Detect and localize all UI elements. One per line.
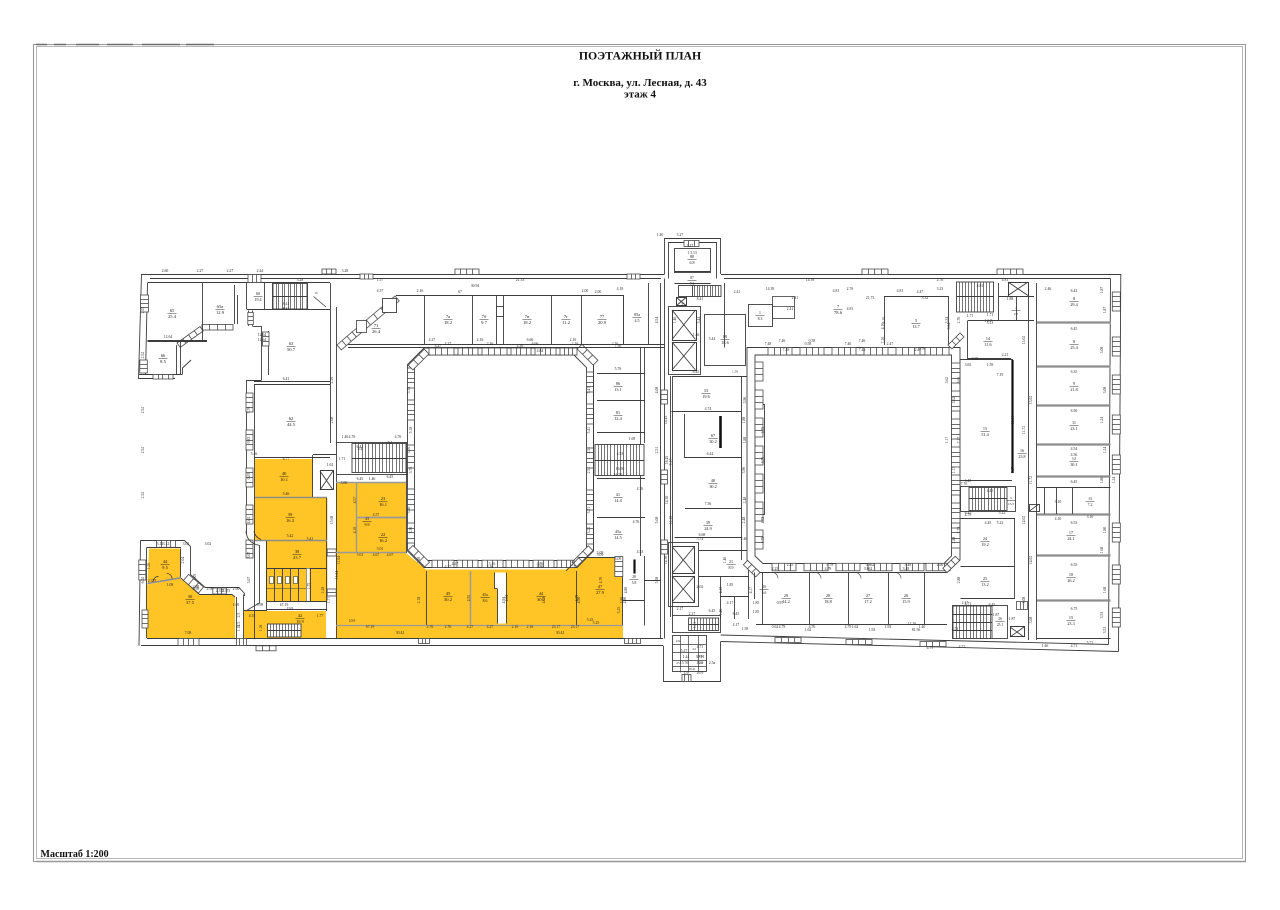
svg-text:3.07: 3.07 bbox=[247, 577, 251, 584]
svg-text:16.2: 16.2 bbox=[379, 538, 388, 543]
svg-text:1.05: 1.05 bbox=[193, 574, 197, 581]
svg-text:23.17: 23.17 bbox=[571, 625, 580, 629]
svg-text:6.45: 6.45 bbox=[989, 603, 996, 607]
svg-text:4.08: 4.08 bbox=[655, 387, 659, 394]
svg-text:8.5: 8.5 bbox=[160, 359, 166, 364]
svg-text:1 3.13: 1 3.13 bbox=[687, 251, 697, 255]
svg-text:11.10: 11.10 bbox=[669, 516, 673, 525]
svg-text:4.94: 4.94 bbox=[502, 597, 506, 604]
svg-text:1.71: 1.71 bbox=[339, 457, 346, 461]
svg-text:4.74: 4.74 bbox=[705, 407, 712, 411]
svg-text:2.41: 2.41 bbox=[734, 290, 741, 294]
svg-text:3.65: 3.65 bbox=[965, 363, 972, 367]
svg-text:1: 1 bbox=[759, 311, 761, 315]
svg-text:3.30: 3.30 bbox=[409, 527, 413, 534]
svg-text:5.42: 5.42 bbox=[287, 534, 294, 538]
svg-text:7.17: 7.17 bbox=[669, 459, 673, 466]
svg-text:4.47: 4.47 bbox=[917, 290, 924, 294]
svg-text:4.75: 4.75 bbox=[761, 457, 765, 464]
svg-text:8.4: 8.4 bbox=[358, 447, 363, 451]
svg-text:3.10: 3.10 bbox=[1087, 515, 1094, 519]
svg-text:11.2: 11.2 bbox=[562, 320, 571, 325]
svg-text:3.16: 3.16 bbox=[489, 562, 496, 566]
svg-text:1.71: 1.71 bbox=[987, 313, 994, 317]
svg-text:4.75: 4.75 bbox=[761, 427, 765, 434]
svg-text:4.78: 4.78 bbox=[761, 517, 765, 524]
svg-text:этаж 4: этаж 4 bbox=[624, 89, 657, 101]
svg-text:3.34: 3.34 bbox=[945, 317, 949, 324]
svg-text:8.41: 8.41 bbox=[283, 307, 290, 311]
svg-text:2.51: 2.51 bbox=[587, 467, 591, 474]
svg-text:г. Москва, ул. Лесная, д. 43: г. Москва, ул. Лесная, д. 43 bbox=[573, 77, 707, 89]
svg-text:25: 25 bbox=[983, 576, 987, 581]
svg-text:2.17: 2.17 bbox=[677, 607, 684, 611]
svg-text:3.30: 3.30 bbox=[407, 507, 411, 514]
svg-text:10: 10 bbox=[1069, 572, 1073, 577]
svg-text:5.25: 5.25 bbox=[593, 621, 600, 625]
svg-text:20: 20 bbox=[762, 585, 766, 589]
svg-text:39: 39 bbox=[288, 512, 293, 517]
svg-text:4.57: 4.57 bbox=[353, 497, 357, 504]
svg-text:21.8: 21.8 bbox=[1070, 387, 1077, 392]
svg-text:7б: 7б bbox=[482, 314, 487, 319]
svg-text:30.1: 30.1 bbox=[1070, 462, 1077, 467]
svg-text:1.24: 1.24 bbox=[1112, 477, 1116, 484]
svg-text:67.19: 67.19 bbox=[280, 603, 289, 607]
svg-text:30.42: 30.42 bbox=[556, 631, 565, 635]
svg-text:2.52: 2.52 bbox=[141, 407, 145, 414]
svg-text:4.27: 4.27 bbox=[429, 338, 436, 342]
svg-text:30.2: 30.2 bbox=[444, 597, 453, 602]
svg-text:1.87: 1.87 bbox=[1009, 617, 1016, 621]
svg-text:3.862: 3.862 bbox=[866, 563, 875, 567]
svg-text:23.17: 23.17 bbox=[552, 625, 561, 629]
svg-text:8.4: 8.4 bbox=[388, 441, 393, 445]
svg-text:6.55: 6.55 bbox=[1071, 563, 1078, 567]
svg-text:4.79: 4.79 bbox=[779, 625, 786, 629]
svg-text:1.93: 1.93 bbox=[885, 625, 892, 629]
svg-text:14.02: 14.02 bbox=[1029, 556, 1033, 565]
svg-text:86: 86 bbox=[616, 381, 620, 386]
svg-text:16.3: 16.3 bbox=[286, 518, 295, 523]
svg-text:12.4: 12.4 bbox=[614, 416, 622, 421]
svg-text:18.6: 18.6 bbox=[721, 340, 728, 345]
svg-text:6.45: 6.45 bbox=[1071, 480, 1078, 484]
svg-text:1.46: 1.46 bbox=[1042, 644, 1049, 648]
svg-text:67: 67 bbox=[711, 433, 715, 438]
svg-text:13.7: 13.7 bbox=[912, 324, 919, 329]
svg-text:4.27: 4.27 bbox=[445, 565, 452, 569]
svg-text:3.09: 3.09 bbox=[615, 557, 622, 561]
svg-text:2.04: 2.04 bbox=[181, 557, 185, 564]
svg-text:2.375: 2.375 bbox=[222, 589, 231, 593]
svg-text:7.17: 7.17 bbox=[957, 437, 961, 444]
svg-text:21.73: 21.73 bbox=[866, 296, 875, 300]
svg-text:2.16: 2.16 bbox=[417, 289, 424, 293]
svg-text:2.52: 2.52 bbox=[141, 492, 145, 499]
svg-text:23: 23 bbox=[381, 496, 386, 501]
svg-text:4.81: 4.81 bbox=[977, 284, 984, 288]
svg-text:51.4: 51.4 bbox=[981, 432, 989, 437]
svg-text:2.27: 2.27 bbox=[227, 269, 234, 273]
svg-text:8: 8 bbox=[1073, 296, 1075, 301]
svg-text:5.41: 5.41 bbox=[307, 537, 314, 541]
svg-text:1б: 1б bbox=[314, 291, 318, 295]
svg-text:40: 40 bbox=[282, 471, 287, 476]
svg-text:30.2: 30.2 bbox=[709, 484, 716, 489]
svg-text:8.41: 8.41 bbox=[697, 297, 704, 301]
svg-text:4.76: 4.76 bbox=[599, 577, 603, 584]
svg-text:14.5: 14.5 bbox=[614, 535, 621, 540]
svg-text:0.58: 0.58 bbox=[805, 342, 812, 346]
svg-text:2.16: 2.16 bbox=[512, 625, 519, 629]
svg-text:4.10: 4.10 bbox=[1055, 517, 1062, 521]
svg-text:8.6: 8.6 bbox=[483, 599, 488, 603]
svg-text:3.76: 3.76 bbox=[407, 447, 411, 454]
svg-text:5.41: 5.41 bbox=[587, 387, 591, 394]
svg-text:7.19: 7.19 bbox=[997, 373, 1004, 377]
svg-text:5.76: 5.76 bbox=[615, 367, 622, 371]
svg-text:1.46: 1.46 bbox=[719, 609, 723, 616]
svg-text:2.48: 2.48 bbox=[742, 517, 746, 524]
svg-text:2.46: 2.46 bbox=[1045, 287, 1052, 291]
svg-text:2.08: 2.08 bbox=[330, 417, 334, 424]
svg-text:7.08: 7.08 bbox=[185, 631, 192, 635]
svg-text:4.55: 4.55 bbox=[249, 614, 256, 618]
svg-text:29: 29 bbox=[784, 593, 788, 598]
svg-text:66: 66 bbox=[161, 353, 166, 358]
svg-text:16.50: 16.50 bbox=[616, 467, 625, 471]
svg-text:22: 22 bbox=[381, 532, 386, 537]
svg-text:1.46: 1.46 bbox=[369, 477, 376, 481]
svg-text:3.32: 3.32 bbox=[922, 296, 929, 300]
svg-text:2.78: 2.78 bbox=[957, 527, 961, 534]
svg-text:1.80: 1.80 bbox=[1103, 527, 1107, 534]
svg-text:6.35: 6.35 bbox=[1071, 370, 1078, 374]
svg-text:85а: 85а bbox=[634, 312, 640, 317]
svg-text:5.71: 5.71 bbox=[1087, 641, 1094, 645]
svg-text:26: 26 bbox=[998, 617, 1002, 621]
svg-text:5.76: 5.76 bbox=[247, 407, 251, 414]
svg-text:5.18: 5.18 bbox=[407, 387, 411, 394]
svg-text:Масштаб 1:200: Масштаб 1:200 bbox=[41, 849, 109, 860]
svg-text:2.46: 2.46 bbox=[741, 537, 748, 541]
svg-text:3.53: 3.53 bbox=[1100, 612, 1104, 619]
svg-text:1.57: 1.57 bbox=[377, 278, 384, 282]
svg-text:1.88: 1.88 bbox=[1007, 297, 1014, 301]
svg-text:2: 2 bbox=[681, 303, 683, 307]
svg-text:14.4: 14.4 bbox=[614, 498, 622, 503]
svg-text:24.9: 24.9 bbox=[704, 526, 711, 531]
svg-text:3.08: 3.08 bbox=[1022, 597, 1026, 604]
svg-text:71: 71 bbox=[374, 323, 379, 328]
svg-text:11.10: 11.10 bbox=[1011, 416, 1015, 425]
svg-text:3.21: 3.21 bbox=[587, 527, 591, 534]
svg-text:14.2: 14.2 bbox=[782, 599, 789, 604]
svg-text:1.40: 1.40 bbox=[657, 233, 664, 237]
svg-text:2.44: 2.44 bbox=[257, 269, 264, 273]
svg-text:44: 44 bbox=[163, 559, 168, 564]
svg-text:3.65: 3.65 bbox=[972, 357, 979, 361]
svg-text:8.9: 8.9 bbox=[729, 565, 734, 570]
svg-text:11.72: 11.72 bbox=[1029, 476, 1033, 485]
svg-text:2.98: 2.98 bbox=[193, 587, 200, 591]
svg-text:4.81: 4.81 bbox=[897, 289, 904, 293]
svg-text:4.57: 4.57 bbox=[377, 289, 384, 293]
svg-text:5.25: 5.25 bbox=[617, 607, 621, 614]
svg-text:4.79: 4.79 bbox=[542, 597, 546, 604]
svg-text:7г: 7г bbox=[564, 314, 568, 319]
svg-text:1.85: 1.85 bbox=[727, 583, 734, 587]
svg-text:2.88: 2.88 bbox=[952, 537, 956, 544]
svg-text:9.7: 9.7 bbox=[481, 320, 487, 325]
svg-text:15.68: 15.68 bbox=[330, 516, 334, 525]
svg-text:4.86: 4.86 bbox=[537, 562, 544, 566]
svg-text:2.16: 2.16 bbox=[572, 560, 576, 567]
svg-text:5.41: 5.41 bbox=[587, 427, 591, 434]
svg-text:26.2: 26.2 bbox=[1067, 578, 1074, 583]
svg-text:14.30: 14.30 bbox=[665, 496, 669, 505]
svg-text:13.1: 13.1 bbox=[614, 387, 621, 392]
svg-text:3.12: 3.12 bbox=[163, 542, 170, 546]
svg-text:3.62: 3.62 bbox=[952, 397, 956, 404]
svg-text:4.79: 4.79 bbox=[845, 625, 852, 629]
svg-text:37.5: 37.5 bbox=[186, 600, 195, 605]
svg-text:6.66: 6.66 bbox=[532, 342, 539, 346]
svg-text:2.96: 2.96 bbox=[207, 587, 214, 591]
svg-text:3.23: 3.23 bbox=[937, 287, 944, 291]
svg-text:6.45: 6.45 bbox=[387, 475, 394, 479]
svg-text:2.41: 2.41 bbox=[787, 307, 794, 311]
svg-text:3.34: 3.34 bbox=[947, 323, 951, 330]
svg-text:6.43: 6.43 bbox=[1071, 289, 1078, 293]
svg-text:81: 81 bbox=[616, 410, 620, 415]
svg-text:12.64: 12.64 bbox=[164, 335, 173, 339]
svg-text:3.02: 3.02 bbox=[183, 542, 190, 546]
svg-text:6.50: 6.50 bbox=[1071, 409, 1078, 413]
svg-text:4.10: 4.10 bbox=[719, 587, 723, 594]
svg-text:8: 8 bbox=[1073, 339, 1075, 344]
svg-text:3.44: 3.44 bbox=[697, 317, 701, 324]
svg-text:78.6: 78.6 bbox=[834, 310, 843, 315]
svg-text:5.22: 5.22 bbox=[999, 511, 1006, 515]
svg-text:7.2: 7.2 bbox=[1088, 503, 1093, 507]
svg-text:1.62: 1.62 bbox=[327, 463, 334, 467]
svg-text:12.64: 12.64 bbox=[258, 333, 267, 337]
svg-text:5.46: 5.46 bbox=[251, 452, 258, 456]
svg-text:28: 28 bbox=[632, 575, 636, 579]
svg-text:3.13: 3.13 bbox=[987, 321, 994, 325]
svg-text:16.1: 16.1 bbox=[379, 502, 388, 507]
svg-text:19.6: 19.6 bbox=[702, 394, 709, 399]
svg-text:4.10: 4.10 bbox=[353, 527, 357, 534]
svg-text:4: 4 bbox=[1015, 306, 1017, 310]
svg-text:1.59: 1.59 bbox=[987, 363, 994, 367]
svg-text:3.06: 3.06 bbox=[341, 481, 348, 485]
svg-text:1.46: 1.46 bbox=[673, 317, 677, 324]
svg-text:5.01: 5.01 bbox=[377, 547, 384, 551]
svg-text:2.17: 2.17 bbox=[962, 601, 969, 605]
svg-text:4.81: 4.81 bbox=[1002, 278, 1009, 282]
svg-text:5.08: 5.08 bbox=[655, 517, 659, 524]
svg-text:9.5: 9.5 bbox=[162, 565, 168, 570]
svg-text:5.27: 5.27 bbox=[681, 649, 688, 653]
svg-text:4.90: 4.90 bbox=[577, 597, 581, 604]
svg-text:2.5а: 2.5а bbox=[709, 661, 716, 665]
svg-text:2.52: 2.52 bbox=[141, 352, 145, 359]
svg-text:2.16: 2.16 bbox=[527, 625, 534, 629]
svg-text:2.48: 2.48 bbox=[743, 497, 747, 504]
svg-text:1.17: 1.17 bbox=[945, 437, 949, 444]
svg-text:30.94: 30.94 bbox=[471, 284, 480, 288]
svg-text:6.75: 6.75 bbox=[1071, 607, 1078, 611]
svg-text:6.45: 6.45 bbox=[709, 609, 716, 613]
svg-text:9: 9 bbox=[1073, 381, 1075, 386]
svg-text:3.08: 3.08 bbox=[1100, 347, 1104, 354]
svg-text:4.16: 4.16 bbox=[881, 323, 885, 330]
svg-text:87: 87 bbox=[690, 276, 694, 280]
svg-text:5.01: 5.01 bbox=[357, 553, 364, 557]
svg-text:3.12: 3.12 bbox=[157, 542, 164, 546]
svg-text:2.76: 2.76 bbox=[445, 625, 452, 629]
svg-text:65: 65 bbox=[170, 308, 175, 313]
svg-text:2.97: 2.97 bbox=[141, 307, 145, 314]
svg-text:2.47: 2.47 bbox=[887, 342, 894, 346]
svg-text:11.16: 11.16 bbox=[908, 622, 917, 626]
svg-text:2.76: 2.76 bbox=[847, 287, 854, 291]
svg-text:4.53: 4.53 bbox=[617, 452, 624, 456]
svg-text:6.41: 6.41 bbox=[283, 377, 290, 381]
svg-text:1.59: 1.59 bbox=[732, 370, 738, 374]
svg-text:1.18: 1.18 bbox=[259, 625, 263, 632]
svg-text:4.79: 4.79 bbox=[927, 646, 934, 650]
svg-text:3.27: 3.27 bbox=[677, 233, 684, 237]
svg-text:1.05: 1.05 bbox=[233, 603, 240, 607]
svg-text:28: 28 bbox=[826, 593, 830, 598]
svg-text:4.67: 4.67 bbox=[387, 553, 394, 557]
svg-text:1.76: 1.76 bbox=[919, 347, 926, 351]
svg-text:2.76: 2.76 bbox=[427, 625, 434, 629]
svg-text:4.84: 4.84 bbox=[537, 349, 544, 353]
svg-text:1.44: 1.44 bbox=[683, 655, 690, 659]
svg-text:1.68: 1.68 bbox=[1100, 547, 1104, 554]
svg-text:27.9: 27.9 bbox=[596, 590, 605, 595]
svg-text:16.50: 16.50 bbox=[614, 473, 623, 477]
svg-text:1.26: 1.26 bbox=[147, 563, 151, 570]
svg-text:4.80: 4.80 bbox=[624, 587, 628, 594]
svg-text:42: 42 bbox=[298, 613, 302, 618]
svg-text:7.46: 7.46 bbox=[845, 342, 852, 346]
svg-text:5: 5 bbox=[915, 318, 917, 323]
svg-text:25.4: 25.4 bbox=[1070, 345, 1078, 350]
svg-text:6.6: 6.6 bbox=[762, 591, 767, 595]
svg-text:6.45: 6.45 bbox=[733, 612, 740, 616]
svg-text:13.3: 13.3 bbox=[1008, 502, 1014, 506]
svg-text:3.08: 3.08 bbox=[1103, 387, 1107, 394]
svg-text:26.4: 26.4 bbox=[372, 329, 381, 334]
svg-text:1.85: 1.85 bbox=[753, 610, 760, 614]
svg-text:1.88: 1.88 bbox=[742, 417, 746, 424]
svg-text:3.96: 3.96 bbox=[743, 397, 747, 404]
svg-text:17.2: 17.2 bbox=[864, 599, 871, 604]
svg-text:15: 15 bbox=[1069, 615, 1073, 620]
svg-text:2.76: 2.76 bbox=[957, 317, 961, 324]
svg-text:2.51: 2.51 bbox=[655, 447, 659, 454]
svg-text:0.97: 0.97 bbox=[777, 601, 784, 605]
svg-text:2.25: 2.25 bbox=[787, 563, 794, 567]
svg-text:7.46: 7.46 bbox=[779, 339, 786, 343]
svg-text:4.53: 4.53 bbox=[637, 550, 644, 554]
svg-text:3.09: 3.09 bbox=[597, 551, 604, 555]
svg-text:6.45: 6.45 bbox=[693, 370, 700, 374]
svg-text:63: 63 bbox=[289, 341, 294, 346]
svg-text:4.71: 4.71 bbox=[959, 645, 966, 649]
svg-text:4.90: 4.90 bbox=[623, 597, 627, 604]
svg-text:40: 40 bbox=[711, 478, 715, 483]
svg-text:0.83: 0.83 bbox=[247, 437, 251, 444]
svg-text:19.4: 19.4 bbox=[255, 297, 262, 302]
svg-text:24: 24 bbox=[692, 647, 696, 651]
svg-text:11.72: 11.72 bbox=[1022, 426, 1026, 435]
svg-text:2.18: 2.18 bbox=[417, 557, 421, 564]
svg-text:1.62: 1.62 bbox=[852, 625, 859, 629]
svg-text:2.00: 2.00 bbox=[595, 290, 602, 294]
svg-text:2.16: 2.16 bbox=[487, 342, 494, 346]
svg-text:7.48: 7.48 bbox=[765, 342, 772, 346]
svg-text:50.7: 50.7 bbox=[287, 347, 296, 352]
svg-text:4.76: 4.76 bbox=[633, 520, 640, 524]
svg-text:4.81: 4.81 bbox=[833, 289, 840, 293]
svg-text:30: 30 bbox=[188, 594, 193, 599]
svg-text:77: 77 bbox=[600, 314, 605, 319]
svg-text:2.16: 2.16 bbox=[572, 342, 579, 346]
svg-text:4.17: 4.17 bbox=[733, 623, 740, 627]
svg-text:2.60: 2.60 bbox=[937, 563, 944, 567]
svg-text:1.58: 1.58 bbox=[742, 627, 749, 631]
svg-text:38: 38 bbox=[295, 549, 300, 554]
svg-text:7.46: 7.46 bbox=[859, 348, 866, 352]
svg-text:4.81: 4.81 bbox=[847, 307, 854, 311]
svg-text:12.64: 12.64 bbox=[258, 338, 267, 342]
svg-text:43: 43 bbox=[365, 516, 369, 521]
svg-text:23.7: 23.7 bbox=[293, 555, 302, 560]
svg-text:39: 39 bbox=[706, 520, 710, 525]
svg-text:10.9: 10.9 bbox=[349, 619, 356, 623]
svg-text:6.42: 6.42 bbox=[707, 452, 714, 456]
svg-text:25.1: 25.1 bbox=[997, 623, 1003, 627]
svg-text:1.71: 1.71 bbox=[967, 314, 974, 318]
svg-text:6.77: 6.77 bbox=[283, 457, 290, 461]
svg-text:3.07: 3.07 bbox=[247, 552, 251, 559]
svg-text:2.17: 2.17 bbox=[689, 612, 696, 616]
svg-text:1.46: 1.46 bbox=[723, 557, 727, 564]
svg-text:19.9: 19.9 bbox=[296, 619, 303, 624]
svg-text:3.53: 3.53 bbox=[1103, 627, 1107, 634]
svg-text:13.02: 13.02 bbox=[1029, 396, 1033, 405]
svg-text:6.8: 6.8 bbox=[690, 260, 695, 265]
svg-text:1.24: 1.24 bbox=[1103, 447, 1107, 454]
svg-text:4.18: 4.18 bbox=[617, 287, 624, 291]
svg-text:45а: 45а bbox=[615, 529, 621, 534]
svg-text:4.17: 4.17 bbox=[727, 601, 734, 605]
svg-text:7.48: 7.48 bbox=[783, 348, 790, 352]
svg-text:14.39: 14.39 bbox=[766, 287, 775, 291]
svg-text:1.40: 1.40 bbox=[919, 625, 926, 629]
svg-text:0.62: 0.62 bbox=[772, 625, 779, 629]
svg-text:7.56: 7.56 bbox=[705, 502, 712, 506]
svg-text:5.22: 5.22 bbox=[997, 521, 1004, 525]
svg-text:2.16: 2.16 bbox=[517, 344, 524, 348]
